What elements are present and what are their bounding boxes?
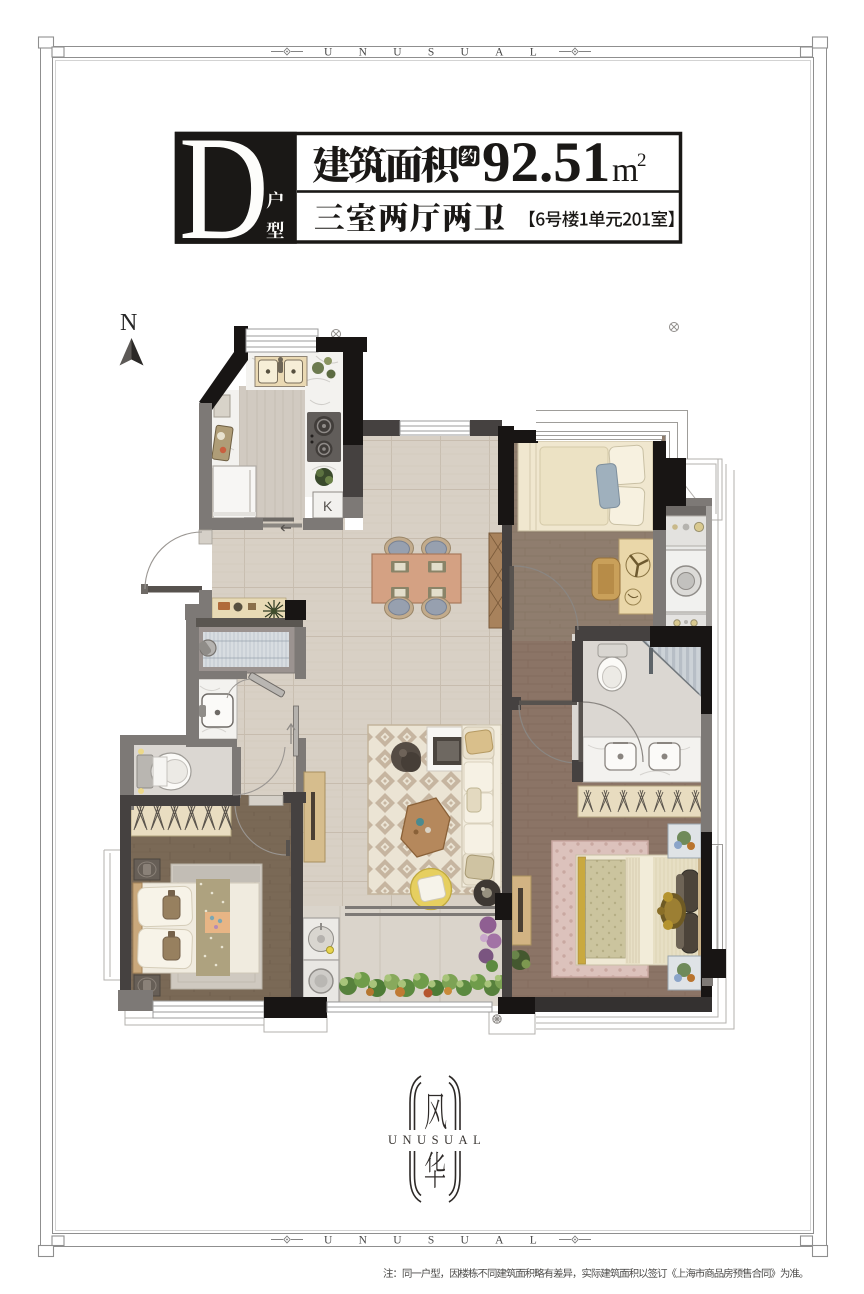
svg-text:92.51: 92.51 <box>482 131 610 194</box>
svg-text:D: D <box>179 105 269 270</box>
svg-text:UNUSUAL: UNUSUAL <box>324 47 563 59</box>
svg-text:K: K <box>323 498 333 514</box>
svg-text:UNUSUAL: UNUSUAL <box>388 1133 486 1147</box>
svg-text:2: 2 <box>637 150 647 171</box>
svg-text:m: m <box>612 152 638 189</box>
svg-text:N: N <box>120 310 137 336</box>
svg-text:UNUSUAL: UNUSUAL <box>324 1235 563 1247</box>
